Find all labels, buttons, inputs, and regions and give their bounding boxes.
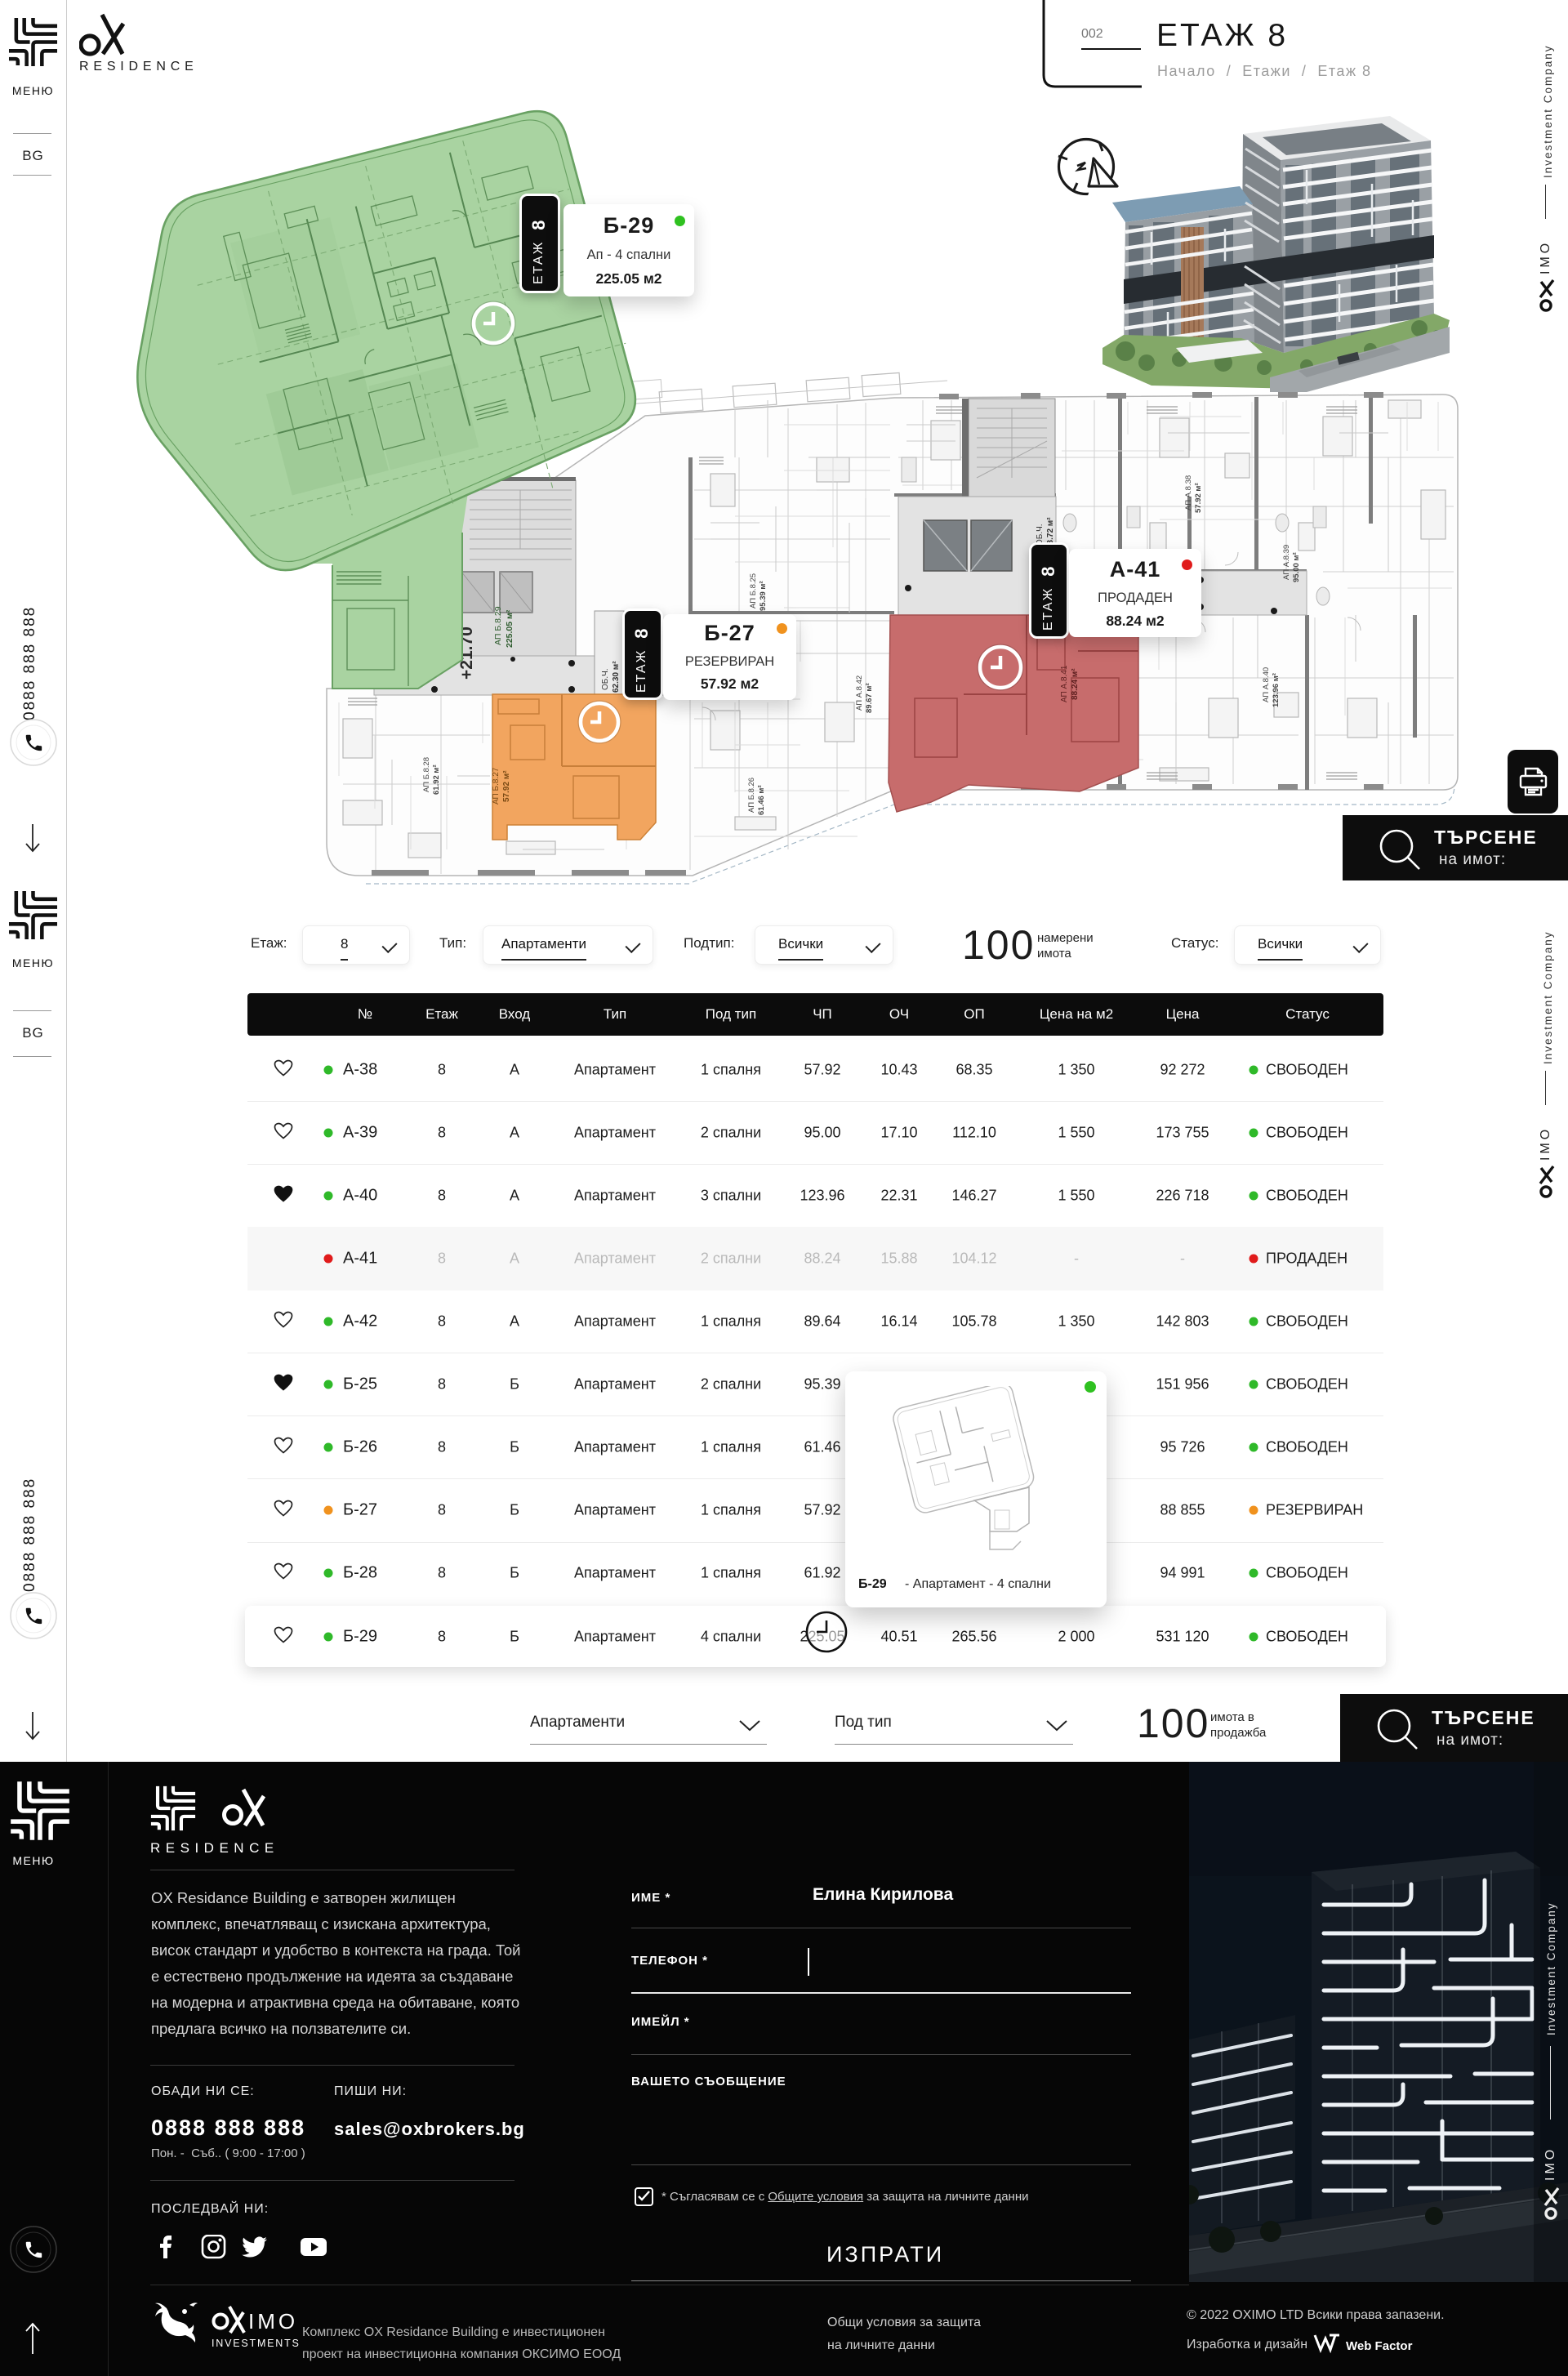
svg-text:RESIDENCE: RESIDENCE — [79, 60, 198, 74]
svg-text:61.92 м²: 61.92 м² — [432, 765, 441, 795]
svg-text:АП Б.8.26: АП Б.8.26 — [747, 778, 756, 813]
svg-text:95.00 м²: 95.00 м² — [1292, 552, 1301, 582]
svg-text:АП А.8.39: АП А.8.39 — [1282, 545, 1291, 580]
svg-text:57.92 м²: 57.92 м² — [502, 770, 511, 802]
svg-text:62.30 м²: 62.30 м² — [612, 661, 621, 693]
svg-text:АП Б.8.25: АП Б.8.25 — [749, 573, 758, 608]
svg-text:61.46 м²: 61.46 м² — [757, 785, 766, 815]
svg-text:АП Б.8.27: АП Б.8.27 — [492, 767, 501, 805]
svg-text:АП А.8.42: АП А.8.42 — [855, 675, 864, 711]
svg-text:АП А.8.38: АП А.8.38 — [1184, 475, 1193, 510]
svg-text:АП Б.8.28: АП Б.8.28 — [422, 757, 431, 792]
svg-text:IMO: IMO — [248, 2309, 298, 2334]
svg-text:225.05 м²: 225.05 м² — [505, 609, 514, 648]
svg-text:57.92 м²: 57.92 м² — [1194, 483, 1203, 513]
svg-text:АП А.8.40: АП А.8.40 — [1262, 667, 1271, 702]
svg-text:89.67 м²: 89.67 м² — [865, 683, 874, 713]
svg-text:ОБ.Ч.: ОБ.Ч. — [601, 668, 610, 690]
svg-text:АП А.8.41: АП А.8.41 — [1060, 665, 1069, 702]
svg-text:95.39 м²: 95.39 м² — [759, 581, 768, 611]
svg-text:123.96 м²: 123.96 м² — [1272, 673, 1281, 707]
svg-text:АП Б.8.29: АП Б.8.29 — [493, 606, 503, 645]
svg-text:88.24 м²: 88.24 м² — [1071, 668, 1080, 700]
